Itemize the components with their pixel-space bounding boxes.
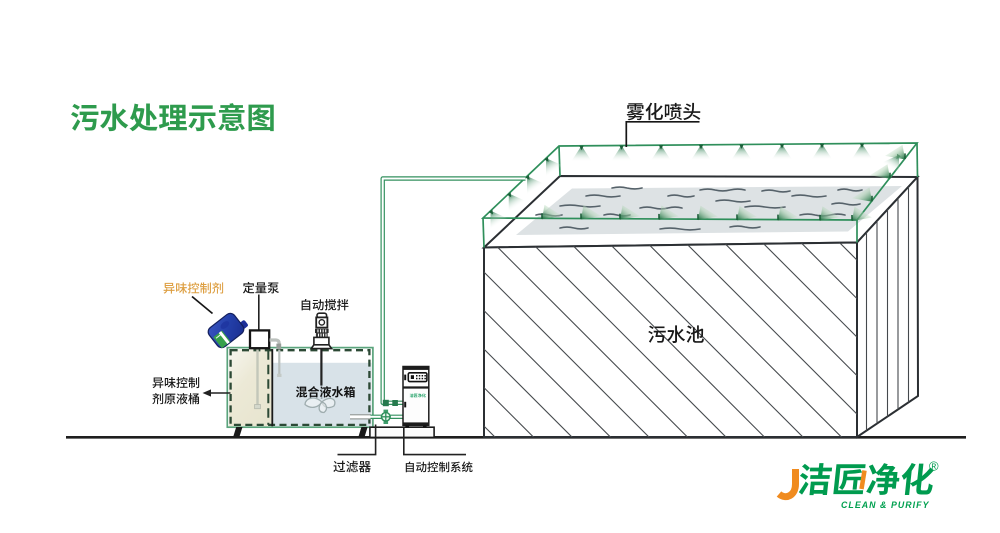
svg-text:®: ® bbox=[929, 459, 939, 474]
svg-text:CLEAN & PURIFY: CLEAN & PURIFY bbox=[841, 500, 930, 510]
